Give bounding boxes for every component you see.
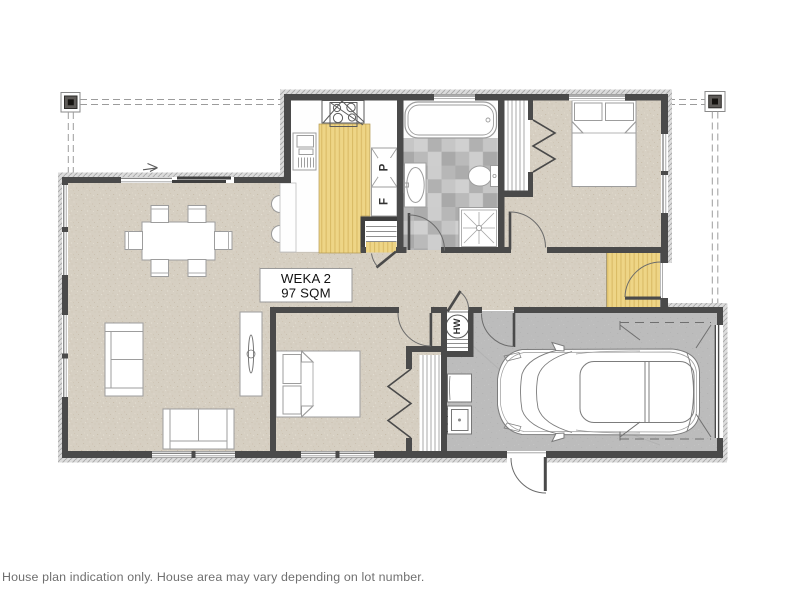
svg-text:F: F	[379, 198, 391, 205]
svg-text:HW: HW	[452, 319, 463, 335]
svg-text:P: P	[379, 163, 391, 171]
svg-text:WEKA 2: WEKA 2	[281, 271, 331, 286]
svg-text:97 SQM: 97 SQM	[281, 286, 331, 301]
